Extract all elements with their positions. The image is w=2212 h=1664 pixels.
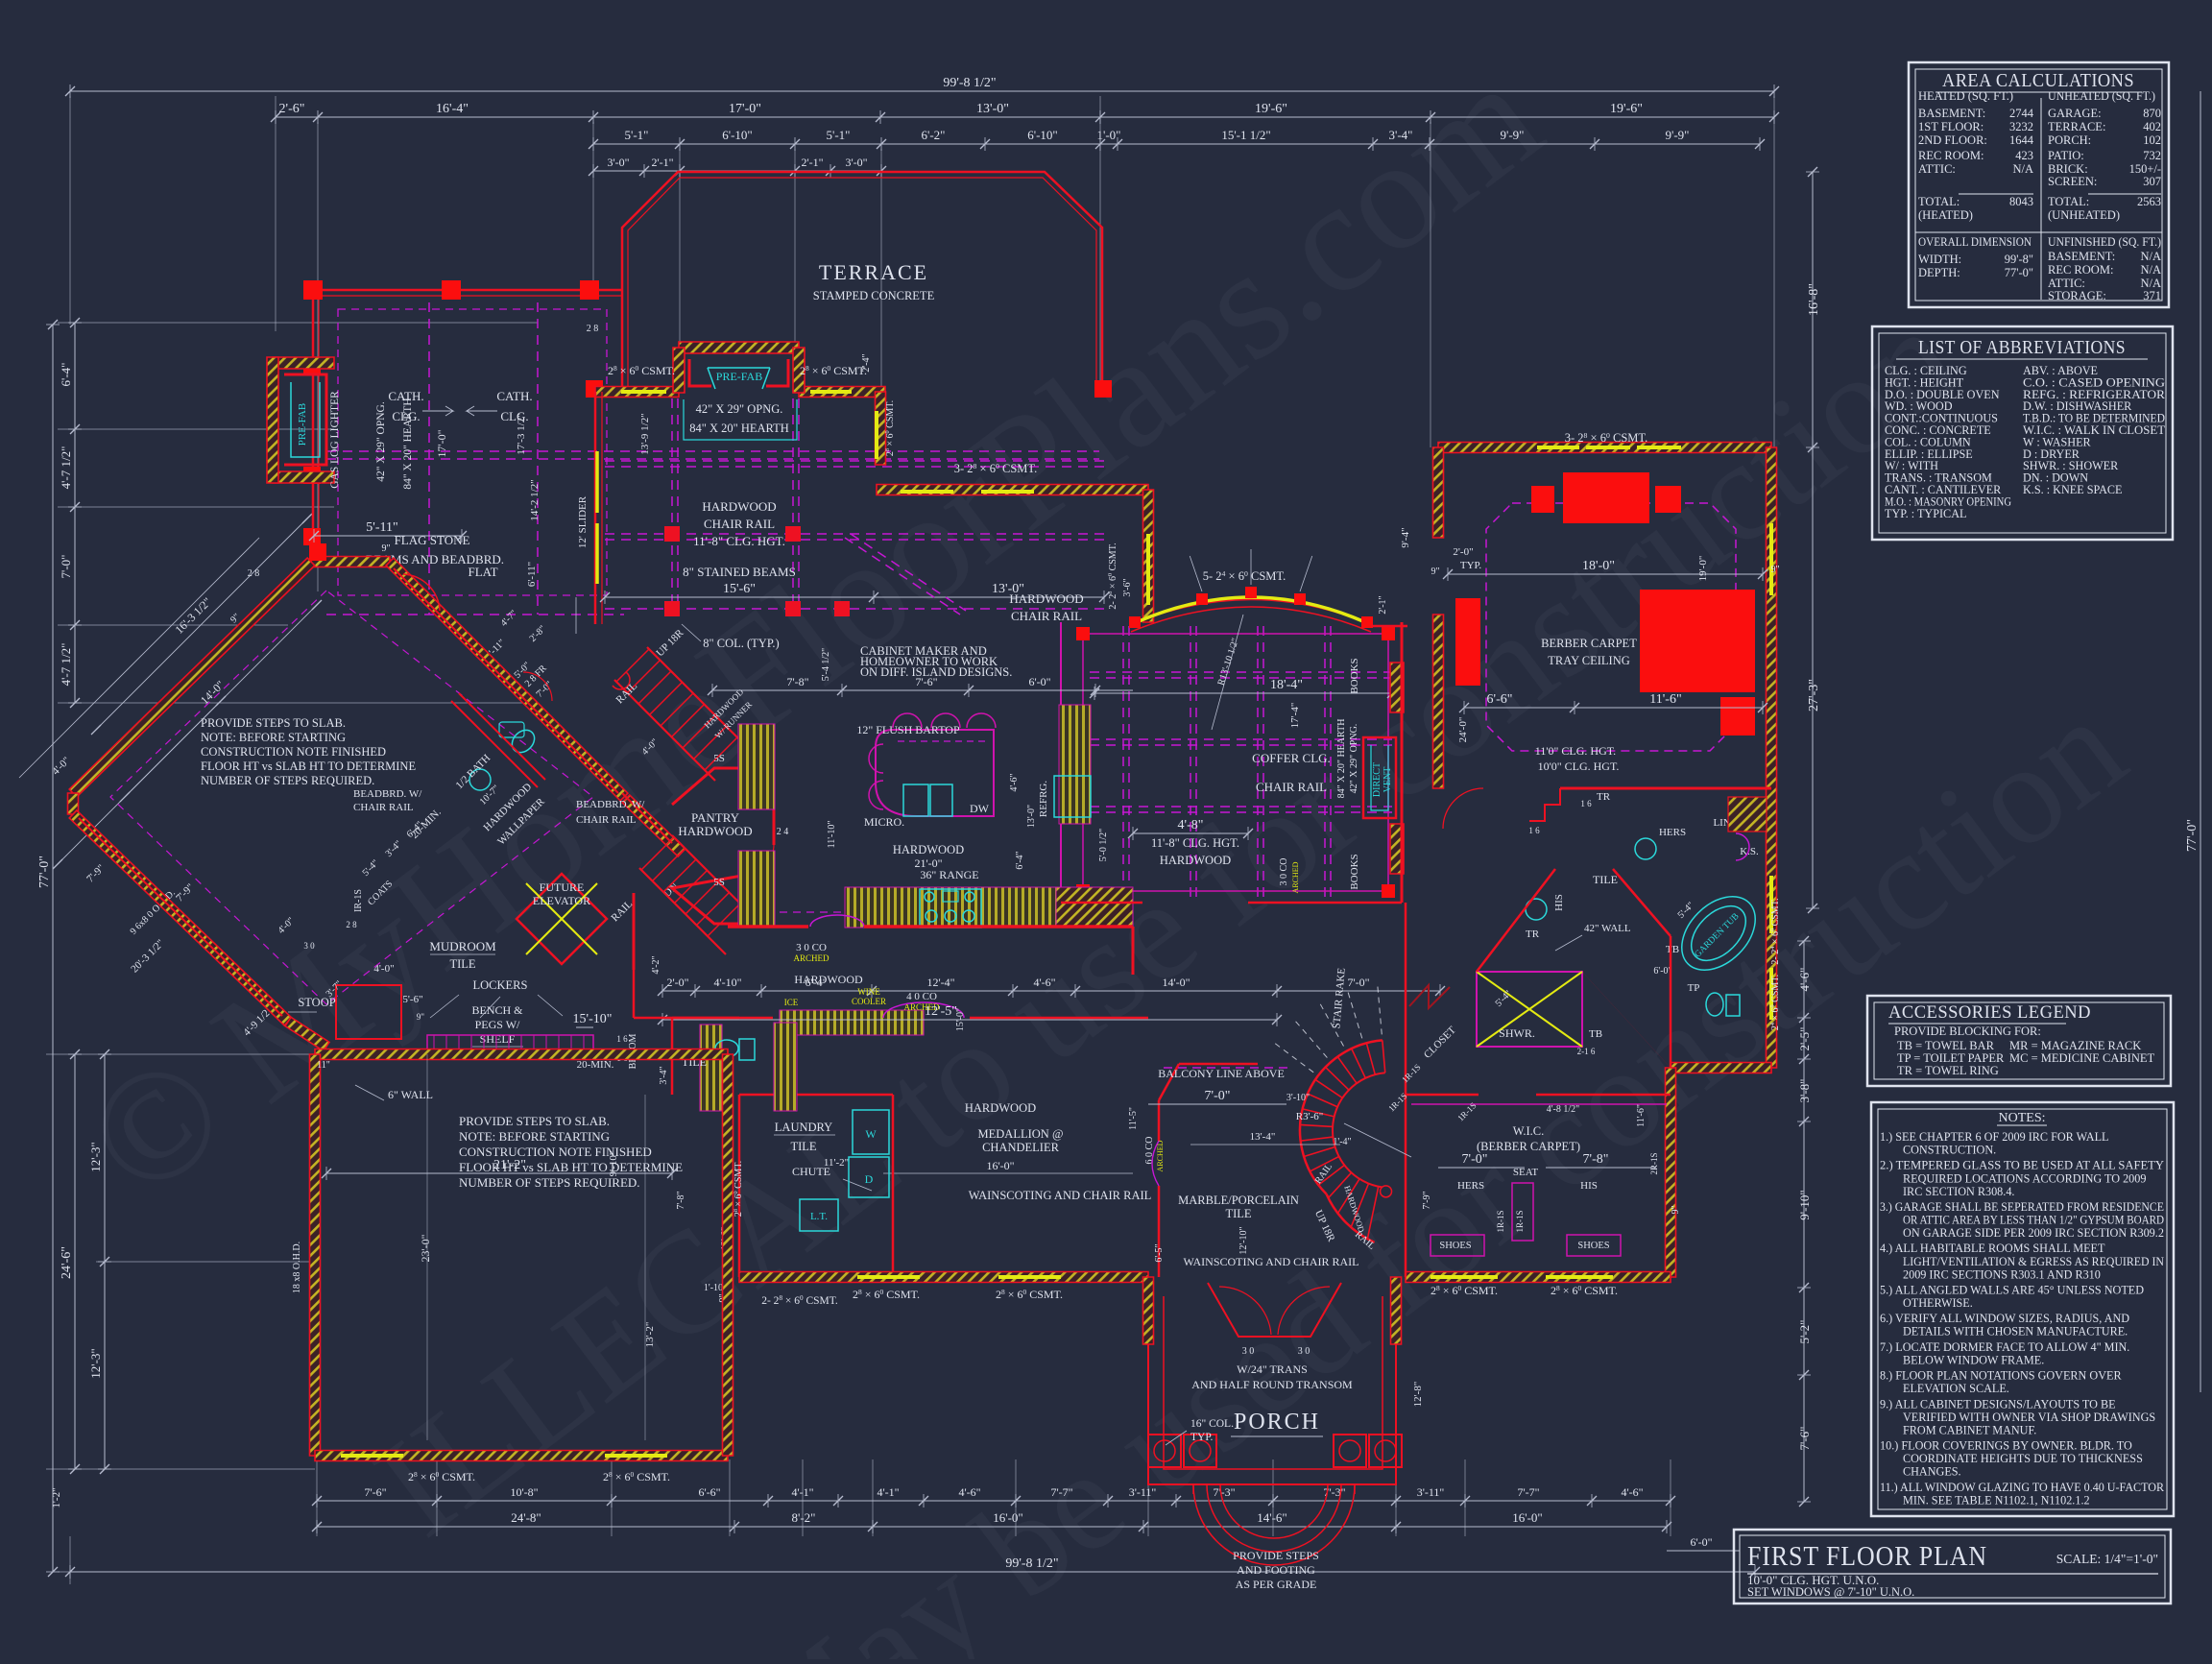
svg-text:5'-11": 5'-11" xyxy=(366,520,397,535)
svg-text:FUTURE: FUTURE xyxy=(540,880,585,894)
svg-text:DEPTH:: DEPTH: xyxy=(1918,266,1960,279)
svg-text:3232: 3232 xyxy=(2009,120,2033,133)
svg-text:3 0: 3 0 xyxy=(1298,1346,1310,1357)
svg-text:9'-10": 9'-10" xyxy=(1797,1190,1812,1219)
svg-text:TILE: TILE xyxy=(1225,1207,1251,1220)
svg-text:N/A: N/A xyxy=(2140,263,2161,277)
svg-text:TOTAL:: TOTAL: xyxy=(1918,195,1960,208)
svg-text:99'-8 1/2": 99'-8 1/2" xyxy=(1005,1556,1058,1571)
svg-text:SHOES: SHOES xyxy=(1577,1241,1609,1251)
svg-text:9": 9" xyxy=(1431,567,1439,577)
svg-text:2'-1": 2'-1" xyxy=(801,156,823,169)
svg-text:11'-8" CLG. HGT.: 11'-8" CLG. HGT. xyxy=(693,534,785,548)
svg-text:5'-0 1/2": 5'-0 1/2" xyxy=(1098,829,1109,862)
svg-text:27'-3": 27'-3" xyxy=(1807,679,1821,711)
svg-text:1R-1S: 1R-1S xyxy=(1515,1210,1525,1232)
svg-text:4'-6": 4'-6" xyxy=(1009,773,1020,791)
svg-text:2'-0": 2'-0" xyxy=(666,976,688,989)
svg-text:(HEATED): (HEATED) xyxy=(1918,208,1973,222)
svg-text:8'-2": 8'-2" xyxy=(792,1510,816,1525)
svg-text:CATH.: CATH. xyxy=(496,389,532,403)
svg-text:6'-4": 6'-4" xyxy=(1015,851,1025,869)
svg-text:11": 11" xyxy=(317,1060,330,1071)
svg-text:12'-8": 12'-8" xyxy=(1412,1382,1424,1408)
svg-text:16'-0": 16'-0" xyxy=(986,1159,1014,1172)
svg-text:77'-0": 77'-0" xyxy=(37,856,52,888)
svg-text:CHUTE: CHUTE xyxy=(792,1165,830,1178)
svg-text:24'-6": 24'-6" xyxy=(60,1246,74,1279)
svg-text:102: 102 xyxy=(2143,133,2161,147)
svg-text:17'-0": 17'-0" xyxy=(729,102,761,116)
svg-text:4.) ALL HABITABLE ROOMS SHALL: 4.) ALL HABITABLE ROOMS SHALL MEET xyxy=(1880,1242,2105,1255)
svg-text:PORCH: PORCH xyxy=(1234,1410,1320,1435)
svg-text:CONSTRUCTION NOTE FINISHED: CONSTRUCTION NOTE FINISHED xyxy=(459,1145,652,1159)
svg-text:7.) LOCATE DORMER FACE TO ALLO: 7.) LOCATE DORMER FACE TO ALLOW 4" MIN. xyxy=(1880,1340,2129,1354)
svg-text:15'-6": 15'-6" xyxy=(723,582,756,596)
svg-text:5S: 5S xyxy=(713,877,725,888)
svg-text:7'-7": 7'-7" xyxy=(1517,1485,1539,1499)
svg-text:28 × 60 CSMT.: 28 × 60 CSMT. xyxy=(853,1288,920,1301)
svg-text:16'-8": 16'-8" xyxy=(1807,283,1821,316)
svg-text:5S: 5S xyxy=(713,753,725,764)
svg-text:3'-11": 3'-11" xyxy=(1417,1485,1445,1499)
svg-text:COORDINATE HEIGHTS DUE TO THIC: COORDINATE HEIGHTS DUE TO THICKNESS xyxy=(1903,1452,2143,1465)
svg-text:6'-10": 6'-10" xyxy=(1027,128,1057,142)
svg-text:DW: DW xyxy=(970,802,990,815)
svg-text:2'-5": 2'-5" xyxy=(1797,1027,1812,1051)
svg-text:77'-0": 77'-0" xyxy=(2185,819,2200,852)
svg-text:WINE: WINE xyxy=(857,987,880,997)
svg-text:7'-8": 7'-8" xyxy=(676,1191,686,1209)
svg-text:BALCONY LINE ABOVE: BALCONY LINE ABOVE xyxy=(1158,1067,1285,1080)
svg-text:GAS LOG LIGHTER: GAS LOG LIGHTER xyxy=(329,391,341,489)
svg-text:12'-10": 12'-10" xyxy=(1238,1226,1249,1254)
svg-text:TB = TOWEL BAR: TB = TOWEL BAR xyxy=(1897,1039,1995,1052)
svg-text:12'-3": 12'-3" xyxy=(88,1348,103,1378)
svg-text:6'-2": 6'-2" xyxy=(922,128,946,142)
svg-text:7'-6": 7'-6" xyxy=(1797,1427,1812,1451)
svg-text:3 0: 3 0 xyxy=(1242,1346,1255,1357)
svg-text:2009 IRC SECTIONS R303.1 AND R: 2009 IRC SECTIONS R303.1 AND R310 xyxy=(1903,1267,2101,1281)
svg-text:2 4: 2 4 xyxy=(777,827,789,837)
svg-text:IRC SECTION R308.4.: IRC SECTION R308.4. xyxy=(1903,1185,2014,1198)
svg-text:GARAGE:: GARAGE: xyxy=(2048,107,2102,120)
svg-text:17'-4": 17'-4" xyxy=(1289,703,1301,729)
svg-text:PROVIDE STEPS TO SLAB.: PROVIDE STEPS TO SLAB. xyxy=(201,716,346,730)
svg-text:3'-6": 3'-6" xyxy=(1122,578,1133,596)
svg-text:2744: 2744 xyxy=(2009,107,2034,120)
svg-text:MICRO.: MICRO. xyxy=(864,815,904,829)
svg-text:2ND FLOOR:: 2ND FLOOR: xyxy=(1918,133,1987,147)
svg-text:BEADBRD. W/: BEADBRD. W/ xyxy=(576,799,645,810)
svg-text:28 × 60 CSMT.: 28 × 60 CSMT. xyxy=(608,364,675,377)
svg-text:28 × 60 CSMT.: 28 × 60 CSMT. xyxy=(408,1470,475,1483)
svg-text:13'-2": 13'-2" xyxy=(644,1322,656,1348)
svg-text:11'-5": 11'-5" xyxy=(1128,1107,1139,1130)
svg-text:6'-0": 6'-0" xyxy=(1028,675,1050,688)
svg-text:3'-4": 3'-4" xyxy=(1389,128,1413,142)
svg-text:NOTE: BEFORE STARTING: NOTE: BEFORE STARTING xyxy=(201,731,346,744)
svg-text:MEDALLION @: MEDALLION @ xyxy=(978,1127,1064,1141)
svg-text:2 8: 2 8 xyxy=(587,324,599,334)
svg-text:11'-10": 11'-10" xyxy=(827,821,837,849)
svg-text:D: D xyxy=(865,1172,874,1186)
svg-text:OTHERWISE.: OTHERWISE. xyxy=(1903,1296,1973,1310)
svg-text:21'-0": 21'-0" xyxy=(914,856,942,870)
svg-text:LIGHT/VENTILATION & EGRESS AS: LIGHT/VENTILATION & EGRESS AS REQUIRED I… xyxy=(1903,1255,2164,1268)
svg-text:NOTES:: NOTES: xyxy=(1999,1111,2046,1125)
svg-text:PROVIDE STEPS TO SLAB.: PROVIDE STEPS TO SLAB. xyxy=(459,1114,610,1128)
svg-text:4'-6": 4'-6" xyxy=(958,1485,980,1499)
svg-text:HEATED (SQ. FT.): HEATED (SQ. FT.) xyxy=(1918,89,2013,103)
svg-text:7'-8": 7'-8" xyxy=(786,675,808,688)
svg-text:HIS: HIS xyxy=(1580,1180,1598,1192)
svg-text:MIN. SEE TABLE N1102.1, N1102: MIN. SEE TABLE N1102.1, N1102.1.2 xyxy=(1903,1493,2090,1507)
svg-text:3'-11": 3'-11" xyxy=(1129,1485,1157,1499)
svg-text:19'-6": 19'-6" xyxy=(1255,102,1287,116)
svg-text:PEGS W/: PEGS W/ xyxy=(475,1018,520,1031)
svg-text:TERRACE: TERRACE xyxy=(819,260,928,284)
svg-text:11.) ALL WINDOW GLAZING TO HAV: 11.) ALL WINDOW GLAZING TO HAVE 0.40 U-F… xyxy=(1880,1481,2165,1494)
svg-text:1.) SEE CHAPTER 6 OF 2009 IRC: 1.) SEE CHAPTER 6 OF 2009 IRC FOR WALL xyxy=(1880,1130,2108,1144)
svg-text:(BERBER CARPET): (BERBER CARPET) xyxy=(1477,1140,1580,1153)
svg-text:28 × 60 CSMT.: 28 × 60 CSMT. xyxy=(733,1161,744,1217)
svg-text:TRAY CEILING: TRAY CEILING xyxy=(1548,654,1630,667)
svg-text:HARDWOOD: HARDWOOD xyxy=(702,499,776,514)
svg-text:CHANGES.: CHANGES. xyxy=(1903,1465,1961,1479)
svg-text:CLG.: CLG. xyxy=(392,409,420,423)
svg-text:BASEMENT:: BASEMENT: xyxy=(2048,250,2115,263)
svg-text:N/A: N/A xyxy=(2140,277,2161,290)
svg-text:L.T.: L.T. xyxy=(810,1211,828,1222)
svg-text:CHAIR RAIL: CHAIR RAIL xyxy=(576,814,637,826)
svg-text:TYP. : TYPICAL: TYP. : TYPICAL xyxy=(1885,507,1966,520)
svg-text:2'-1": 2'-1" xyxy=(651,156,673,169)
svg-text:7'-0": 7'-0" xyxy=(59,555,73,579)
svg-text:2563: 2563 xyxy=(2137,195,2161,208)
svg-text:20-MIN.: 20-MIN. xyxy=(577,1059,614,1071)
svg-text:REC ROOM:: REC ROOM: xyxy=(1918,149,1984,162)
svg-text:REFRG.: REFRG. xyxy=(1038,781,1049,817)
svg-text:(UNHEATED): (UNHEATED) xyxy=(2048,208,2120,222)
svg-text:TP: TP xyxy=(1688,982,1700,994)
svg-text:HIS: HIS xyxy=(1553,894,1565,911)
svg-text:4'-6": 4'-6" xyxy=(1033,976,1055,989)
svg-text:LAUNDRY: LAUNDRY xyxy=(775,1121,832,1134)
svg-text:42" X 29" OPNG.: 42" X 29" OPNG. xyxy=(696,402,783,416)
svg-text:16'-0": 16'-0" xyxy=(993,1510,1022,1525)
svg-text:SEAT: SEAT xyxy=(1513,1167,1539,1178)
svg-text:OVERALL DIMENSION: OVERALL DIMENSION xyxy=(1918,235,2032,249)
svg-text:5'-4 1/2": 5'-4 1/2" xyxy=(821,648,831,682)
svg-text:ELEVATION SCALE.: ELEVATION SCALE. xyxy=(1903,1382,2009,1395)
svg-text:6.) VERIFY ALL WINDOW SIZES, R: 6.) VERIFY ALL WINDOW SIZES, RADIUS, AND xyxy=(1880,1312,2129,1325)
svg-text:3 0: 3 0 xyxy=(303,941,315,951)
svg-text:18'-4": 18'-4" xyxy=(1270,678,1303,692)
svg-text:IR-1S: IR-1S xyxy=(353,889,364,912)
svg-text:HARDWOOD: HARDWOOD xyxy=(893,843,964,856)
svg-text:28 × 60 CSMT.: 28 × 60 CSMT. xyxy=(603,1470,670,1483)
svg-text:5'-1": 5'-1" xyxy=(827,128,851,142)
svg-text:4'-6": 4'-6" xyxy=(1621,1485,1643,1499)
svg-text:3 0 CO: 3 0 CO xyxy=(796,942,827,953)
svg-text:402: 402 xyxy=(2143,120,2161,133)
svg-text:CHAIR RAIL: CHAIR RAIL xyxy=(1256,780,1327,794)
svg-text:W/24" TRANS: W/24" TRANS xyxy=(1237,1363,1308,1376)
svg-text:5'-1": 5'-1" xyxy=(625,128,649,142)
svg-text:42" X 29" OPNG.: 42" X 29" OPNG. xyxy=(1349,724,1359,794)
svg-text:BELOW WINDOW FRAME.: BELOW WINDOW FRAME. xyxy=(1903,1353,2044,1366)
svg-text:18'-0": 18'-0" xyxy=(1582,559,1615,573)
svg-text:9": 9" xyxy=(1671,1205,1681,1214)
svg-text:423: 423 xyxy=(2015,149,2033,162)
svg-text:1644: 1644 xyxy=(2009,133,2034,147)
svg-text:9": 9" xyxy=(381,543,390,554)
svg-text:SHELF: SHELF xyxy=(480,1032,516,1046)
svg-text:16'-0": 16'-0" xyxy=(1512,1510,1542,1525)
svg-text:9'-4": 9'-4" xyxy=(1400,527,1411,547)
svg-text:PATIO:: PATIO: xyxy=(2048,149,2084,162)
svg-text:15'-10": 15'-10" xyxy=(573,1012,613,1026)
svg-text:8" COL. (TYP.): 8" COL. (TYP.) xyxy=(703,637,779,650)
svg-text:16'-4": 16'-4" xyxy=(436,102,469,116)
svg-text:BEADBRD. W/: BEADBRD. W/ xyxy=(353,788,422,800)
svg-text:TP = TOILET PAPER: TP = TOILET PAPER xyxy=(1897,1051,2005,1065)
svg-text:TERRACE:: TERRACE: xyxy=(2048,120,2105,133)
svg-text:1 6: 1 6 xyxy=(1580,799,1592,808)
svg-text:28 × 60 CSMT.: 28 × 60 CSMT. xyxy=(1551,1284,1618,1297)
svg-text:11'0" CLG. HGT.: 11'0" CLG. HGT. xyxy=(1535,744,1616,758)
svg-text:9'-9": 9'-9" xyxy=(1501,128,1525,142)
svg-text:7'-7": 7'-7" xyxy=(1050,1485,1072,1499)
svg-text:MC = MEDICINE CABINET: MC = MEDICINE CABINET xyxy=(2009,1051,2155,1065)
svg-text:13'-4": 13'-4" xyxy=(1250,1131,1276,1143)
svg-text:BRICK:: BRICK: xyxy=(2048,162,2088,176)
svg-text:REQUIRED LOCATIONS ACCORDING T: REQUIRED LOCATIONS ACCORDING TO 2009 xyxy=(1903,1171,2146,1185)
svg-text:4'-7 1/2": 4'-7 1/2" xyxy=(59,643,73,687)
svg-text:14'-6": 14'-6" xyxy=(1257,1510,1286,1525)
svg-text:4'-8": 4'-8" xyxy=(1178,818,1204,832)
svg-text:6'-0": 6'-0" xyxy=(1690,1535,1712,1549)
svg-text:3'-0": 3'-0" xyxy=(607,156,629,169)
svg-text:5'-2": 5'-2" xyxy=(1797,1320,1812,1344)
svg-text:23'-0": 23'-0" xyxy=(419,1234,432,1262)
svg-text:11'-8" CLG. HGT.: 11'-8" CLG. HGT. xyxy=(1151,836,1239,850)
svg-text:28 × 60 CSMT.: 28 × 60 CSMT. xyxy=(1431,1284,1498,1297)
svg-text:HARDWOOD: HARDWOOD xyxy=(794,973,863,986)
svg-text:99'-8 1/2": 99'-8 1/2" xyxy=(943,76,996,90)
svg-text:7'-0": 7'-0" xyxy=(1205,1089,1231,1103)
svg-text:UNHEATED (SQ. FT.): UNHEATED (SQ. FT.) xyxy=(2048,89,2155,103)
svg-text:WAINSCOTING AND CHAIR RAIL: WAINSCOTING AND CHAIR RAIL xyxy=(1184,1255,1359,1268)
svg-text:2'-6": 2'-6" xyxy=(279,102,305,116)
svg-text:TILE: TILE xyxy=(449,957,475,971)
svg-text:MUDROOM: MUDROOM xyxy=(429,939,496,953)
svg-text:AREA CALCULATIONS: AREA CALCULATIONS xyxy=(1942,70,2134,91)
svg-text:CATH.: CATH. xyxy=(388,389,423,403)
svg-text:3'-10": 3'-10" xyxy=(1286,1093,1310,1103)
svg-text:12' SLIDER: 12' SLIDER xyxy=(577,495,589,548)
svg-text:9.) ALL CABINET DESIGNS/LAYOUT: 9.) ALL CABINET DESIGNS/LAYOUTS TO BE xyxy=(1880,1397,2116,1411)
svg-text:HARDWOOD: HARDWOOD xyxy=(965,1101,1036,1115)
svg-text:6" WALL: 6" WALL xyxy=(388,1088,433,1101)
svg-text:PORCH:: PORCH: xyxy=(2048,133,2091,147)
svg-text:CHAIR RAIL: CHAIR RAIL xyxy=(1011,609,1082,623)
svg-text:DIRECT: DIRECT xyxy=(1372,762,1382,797)
svg-text:REC ROOM:: REC ROOM: xyxy=(2048,263,2113,277)
svg-text:TB: TB xyxy=(1666,944,1679,955)
svg-text:HARDWOOD: HARDWOOD xyxy=(1009,591,1083,606)
svg-text:HARDWOOD: HARDWOOD xyxy=(1160,854,1231,867)
svg-text:STAMPED CONCRETE: STAMPED CONCRETE xyxy=(813,289,935,302)
svg-text:W: W xyxy=(865,1127,877,1141)
svg-text:COOLER: COOLER xyxy=(852,997,886,1006)
svg-text:ACCESSORIES LEGEND: ACCESSORIES LEGEND xyxy=(1888,1003,2091,1023)
svg-text:LOCKERS: LOCKERS xyxy=(473,978,528,992)
svg-text:3 0 CO: 3 0 CO xyxy=(1279,858,1289,886)
svg-text:24'-0": 24'-0" xyxy=(1457,717,1469,743)
svg-text:FIRST FLOOR PLAN: FIRST FLOOR PLAN xyxy=(1747,1542,1987,1572)
svg-text:TOTAL:: TOTAL: xyxy=(2048,195,2089,208)
svg-text:ON GARAGE SIDE PER 2009 IRC SE: ON GARAGE SIDE PER 2009 IRC SECTION R309… xyxy=(1903,1226,2164,1240)
svg-text:3'-0": 3'-0" xyxy=(845,156,867,169)
svg-text:N/A: N/A xyxy=(2140,250,2161,263)
svg-text:W.I.C.: W.I.C. xyxy=(1513,1124,1545,1138)
svg-text:13'-0": 13'-0" xyxy=(976,102,1009,116)
svg-text:MARBLE/PORCELAIN: MARBLE/PORCELAIN xyxy=(1178,1194,1299,1207)
svg-text:SET WINDOWS @ 7'-10" U.N.O.: SET WINDOWS @ 7'-10" U.N.O. xyxy=(1747,1585,1914,1599)
svg-text:19'-0": 19'-0" xyxy=(1697,556,1709,582)
svg-text:AND HALF ROUND TRANSOM: AND HALF ROUND TRANSOM xyxy=(1191,1378,1353,1391)
svg-text:3.) GARAGE SHALL BE SEPERATED: 3.) GARAGE SHALL BE SEPERATED FROM RESID… xyxy=(1880,1200,2164,1214)
svg-text:42" X 29" OPNG.: 42" X 29" OPNG. xyxy=(375,401,387,482)
svg-text:4'-1": 4'-1" xyxy=(877,1485,899,1499)
svg-text:ATTIC:: ATTIC: xyxy=(1918,162,1956,176)
svg-text:24'-8": 24'-8" xyxy=(511,1510,541,1525)
svg-text:6 0 CO: 6 0 CO xyxy=(1144,1137,1155,1165)
svg-text:10'-8": 10'-8" xyxy=(510,1485,538,1499)
svg-text:BENCH &: BENCH & xyxy=(471,1003,523,1017)
svg-text:TB: TB xyxy=(1589,1028,1602,1040)
svg-text:TR: TR xyxy=(1597,791,1611,803)
svg-text:AS PER GRADE: AS PER GRADE xyxy=(1236,1578,1317,1591)
svg-text:9": 9" xyxy=(417,1012,425,1022)
svg-text:16" COL.: 16" COL. xyxy=(1190,1418,1234,1430)
svg-text:84" X 20" HEARTH: 84" X 20" HEARTH xyxy=(689,422,789,435)
svg-text:6'-5": 6'-5" xyxy=(1154,1243,1165,1262)
svg-text:10'0" CLG. HGT.: 10'0" CLG. HGT. xyxy=(1538,760,1620,773)
svg-text:8" STAINED BEAMS: 8" STAINED BEAMS xyxy=(683,565,796,579)
svg-text:371: 371 xyxy=(2143,289,2161,302)
svg-text:SHOES: SHOES xyxy=(1439,1241,1471,1251)
svg-text:3'-8": 3'-8" xyxy=(1797,1079,1812,1103)
svg-text:2-1 6: 2-1 6 xyxy=(1577,1047,1596,1056)
svg-text:9'-9": 9'-9" xyxy=(1666,128,1690,142)
svg-text:MR = MAGAZINE RACK: MR = MAGAZINE RACK xyxy=(2009,1039,2141,1052)
svg-text:BOOKS: BOOKS xyxy=(1349,854,1360,889)
svg-text:TILE: TILE xyxy=(790,1140,816,1153)
svg-text:14'-2 1/2": 14'-2 1/2" xyxy=(529,479,541,520)
svg-text:FLAT: FLAT xyxy=(468,565,497,579)
svg-text:13'-9 1/2": 13'-9 1/2" xyxy=(639,413,651,454)
svg-text:ELEVATOR: ELEVATOR xyxy=(533,894,590,907)
svg-text:N/A: N/A xyxy=(2012,162,2033,176)
svg-text:7'-0": 7'-0" xyxy=(1462,1152,1488,1167)
svg-text:ARCHED: ARCHED xyxy=(793,953,829,963)
svg-text:AND FOOTING: AND FOOTING xyxy=(1237,1563,1315,1577)
svg-text:LIST OF ABBREVIATIONS: LIST OF ABBREVIATIONS xyxy=(1918,337,2126,358)
svg-text:OR ATTIC AREA BY LESS THAN 1/2: OR ATTIC AREA BY LESS THAN 1/2" GYPSUM B… xyxy=(1903,1214,2164,1227)
svg-text:8043: 8043 xyxy=(2009,195,2033,208)
svg-text:6'-10": 6'-10" xyxy=(722,128,752,142)
svg-text:4'-7 1/2": 4'-7 1/2" xyxy=(59,446,73,490)
svg-text:17'-0": 17'-0" xyxy=(435,429,448,457)
svg-text:36" RANGE: 36" RANGE xyxy=(920,868,978,881)
svg-text:SHWR.: SHWR. xyxy=(1499,1026,1535,1040)
svg-text:BASEMENT:: BASEMENT: xyxy=(1918,107,1985,120)
svg-text:15'-0": 15'-0" xyxy=(955,1008,966,1031)
svg-text:6'-4": 6'-4" xyxy=(59,363,73,387)
svg-text:2'-0": 2'-0" xyxy=(1453,546,1473,558)
svg-text:6'-11": 6'-11" xyxy=(526,562,538,587)
svg-text:1R-1S: 1R-1S xyxy=(1496,1210,1505,1232)
svg-text:17'-3 1/2": 17'-3 1/2" xyxy=(516,413,527,454)
svg-text:1'-4": 1'-4" xyxy=(1333,1137,1351,1147)
svg-text:2'-1": 2'-1" xyxy=(1378,595,1388,614)
svg-text:12'-5": 12'-5" xyxy=(925,1004,957,1019)
svg-text:24 × 60 CSMT.: 24 × 60 CSMT. xyxy=(1769,975,1781,1030)
svg-text:SCALE: 1/4"=1'-0": SCALE: 1/4"=1'-0" xyxy=(2056,1552,2158,1566)
svg-text:VERIFIED WITH OWNER VIA SHOP D: VERIFIED WITH OWNER VIA SHOP DRAWINGS xyxy=(1903,1411,2155,1424)
svg-text:WAINSCOTING AND CHAIR RAIL: WAINSCOTING AND CHAIR RAIL xyxy=(969,1189,1152,1202)
svg-text:K.S. : KNEE SPACE: K.S. : KNEE SPACE xyxy=(2023,483,2123,496)
svg-text:1'-2": 1'-2" xyxy=(51,1487,62,1507)
svg-text:TR: TR xyxy=(1526,928,1540,940)
svg-text:TILE: TILE xyxy=(1593,873,1618,886)
svg-text:ICE: ICE xyxy=(784,998,799,1007)
svg-text:9": 9" xyxy=(1770,565,1779,575)
svg-text:PANTRY: PANTRY xyxy=(691,810,740,825)
svg-text:7'-3": 7'-3" xyxy=(1213,1485,1235,1499)
svg-text:PROVIDE BLOCKING FOR:: PROVIDE BLOCKING FOR: xyxy=(1894,1025,2041,1038)
svg-text:14'-0": 14'-0" xyxy=(1162,976,1190,989)
svg-text:150+/-: 150+/- xyxy=(2129,162,2161,176)
svg-text:VENT: VENT xyxy=(1382,767,1393,793)
svg-text:PRE-FAB: PRE-FAB xyxy=(297,403,308,446)
svg-text:19'-6": 19'-6" xyxy=(1610,102,1643,116)
svg-text:2.) TEMPERED GLASS TO BE USED: 2.) TEMPERED GLASS TO BE USED AT ALL SAF… xyxy=(1880,1159,2164,1172)
svg-text:6'-6": 6'-6" xyxy=(1487,692,1513,707)
svg-text:TYP.: TYP. xyxy=(1460,560,1482,571)
svg-text:SCREEN:: SCREEN: xyxy=(2048,175,2097,188)
svg-text:1ST FLOOR:: 1ST FLOOR: xyxy=(1918,120,1984,133)
svg-text:870: 870 xyxy=(2143,107,2161,120)
svg-text:12'-3": 12'-3" xyxy=(88,1142,103,1171)
svg-text:FROM CABINET MANUF.: FROM CABINET MANUF. xyxy=(1903,1423,2036,1436)
svg-text:7'-6": 7'-6" xyxy=(364,1485,386,1499)
svg-text:TR = TOWEL RING: TR = TOWEL RING xyxy=(1897,1064,1999,1077)
svg-text:PRE-FAB: PRE-FAB xyxy=(716,370,762,383)
svg-text:84" X 20" HEARTH: 84" X 20" HEARTH xyxy=(1336,719,1347,799)
svg-text:4'-2": 4'-2" xyxy=(651,955,661,974)
svg-text:28 × 60 CSMT.: 28 × 60 CSMT. xyxy=(996,1288,1063,1301)
svg-text:1 6: 1 6 xyxy=(1528,826,1540,835)
svg-text:5'-6": 5'-6" xyxy=(402,994,422,1005)
svg-text:HARDWOOD: HARDWOOD xyxy=(678,824,752,838)
svg-text:11'-6": 11'-6" xyxy=(1649,692,1681,707)
svg-text:CHAIR RAIL: CHAIR RAIL xyxy=(353,802,414,813)
svg-text:COFFER CLG.: COFFER CLG. xyxy=(1252,751,1331,765)
